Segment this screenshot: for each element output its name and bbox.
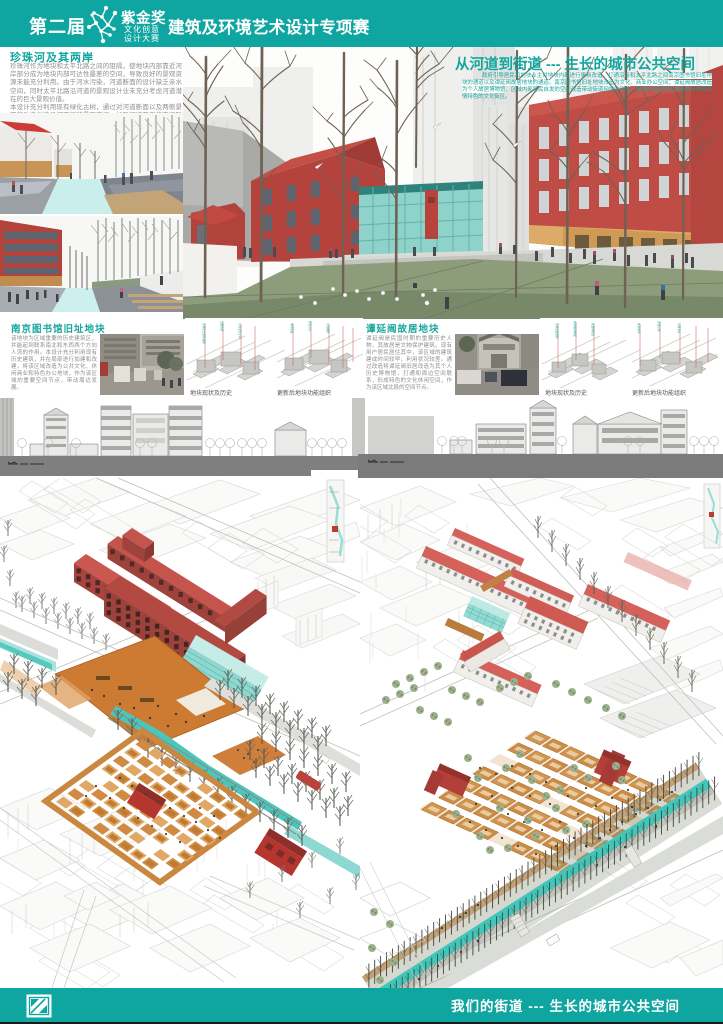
svg-text:公共服务: 公共服务 bbox=[326, 323, 330, 334]
svg-text:现状历史建筑保留: 现状历史建筑保留 bbox=[202, 323, 206, 344]
svg-text:休闲商业: 休闲商业 bbox=[290, 323, 294, 334]
svg-text:故居博物馆: 故居博物馆 bbox=[591, 323, 595, 336]
svg-text:现状故居建筑: 现状故居建筑 bbox=[555, 323, 559, 339]
svg-text:文物保护修缮: 文物保护修缮 bbox=[573, 321, 577, 337]
svg-text:文化休闲: 文化休闲 bbox=[637, 323, 641, 334]
svg-text:公共文化空间: 公共文化空间 bbox=[238, 323, 242, 339]
svg-text:特色办公: 特色办公 bbox=[308, 321, 312, 332]
svg-text:空间节点: 空间节点 bbox=[677, 323, 681, 334]
svg-text:加建改造: 加建改造 bbox=[220, 321, 224, 332]
svg-text:景观空间: 景观空间 bbox=[657, 321, 661, 332]
